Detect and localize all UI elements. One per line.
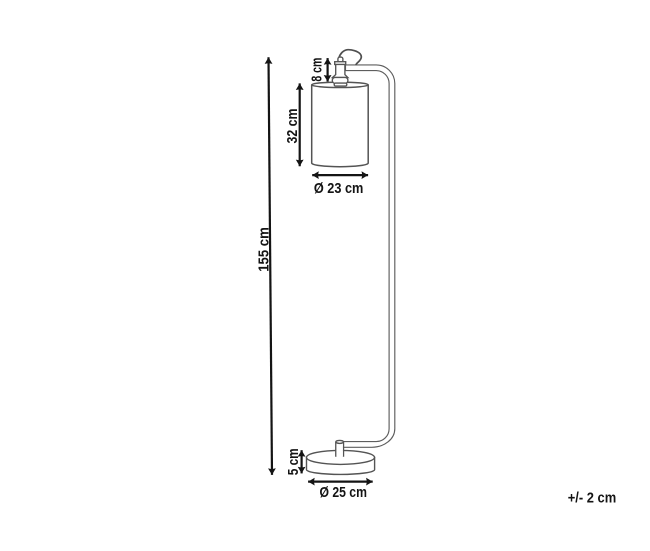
svg-text:Ø 25 cm: Ø 25 cm bbox=[319, 485, 367, 501]
svg-text:32 cm: 32 cm bbox=[285, 108, 301, 143]
svg-text:155 cm: 155 cm bbox=[256, 227, 272, 272]
svg-text:Ø 23 cm: Ø 23 cm bbox=[314, 181, 364, 197]
svg-text:+/- 2 cm: +/- 2 cm bbox=[568, 491, 617, 507]
svg-text:8 cm: 8 cm bbox=[310, 58, 326, 82]
svg-text:5 cm: 5 cm bbox=[286, 448, 302, 475]
